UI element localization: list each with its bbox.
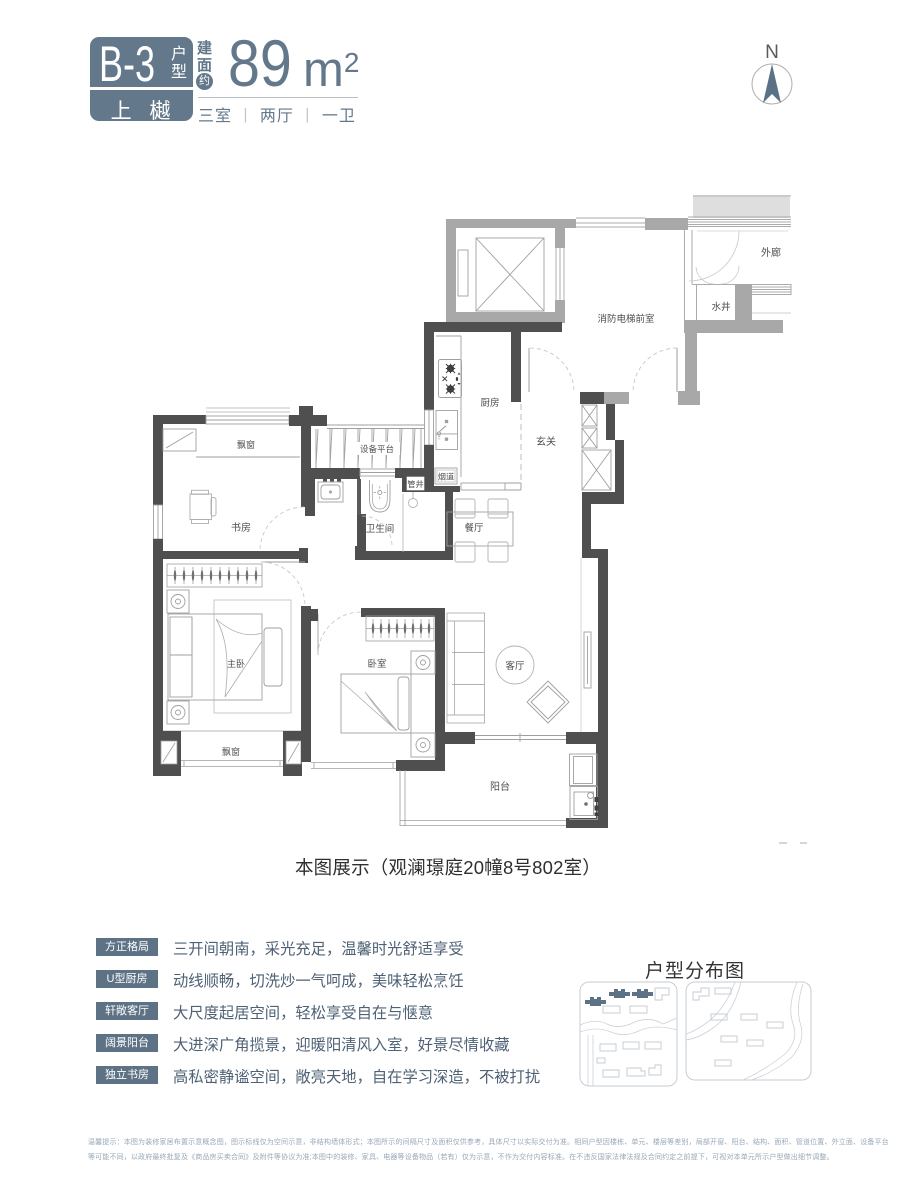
svg-text:玄关: 玄关 [536,435,556,448]
svg-text:外廊: 外廊 [761,246,781,259]
svg-text:设备平台: 设备平台 [360,444,394,454]
svg-text:管井: 管井 [407,479,423,489]
svg-text:烟道: 烟道 [438,472,454,482]
svg-text:飘窗: 飘窗 [222,746,240,757]
svg-text:阳台: 阳台 [490,780,510,793]
svg-text:卫生间: 卫生间 [366,523,395,535]
svg-text:餐厅: 餐厅 [464,522,484,534]
svg-text:书房: 书房 [231,521,251,534]
svg-text:水井: 水井 [711,301,730,313]
svg-text:卧室: 卧室 [367,658,386,670]
svg-text:消防电梯前室: 消防电梯前室 [597,313,654,325]
svg-text:客厅: 客厅 [505,660,525,672]
svg-text:厨房: 厨房 [480,397,499,409]
svg-text:主卧: 主卧 [227,658,245,669]
svg-text:飘窗: 飘窗 [237,439,255,450]
